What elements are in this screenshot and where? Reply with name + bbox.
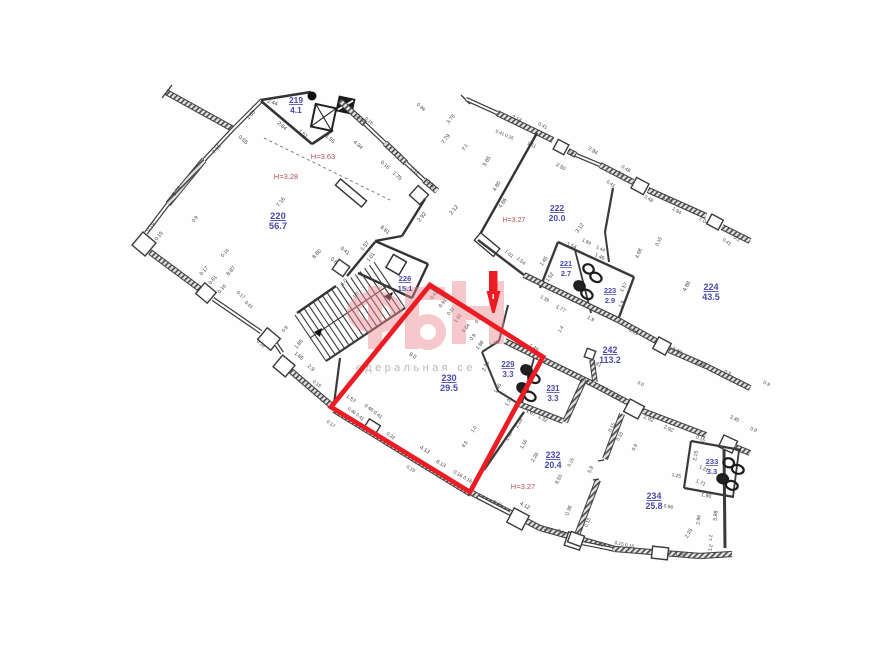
svg-text:Н=3.27: Н=3.27: [511, 482, 535, 491]
svg-text:1.2: 1.2: [707, 544, 714, 552]
svg-text:25.8: 25.8: [645, 501, 662, 511]
svg-text:2.7: 2.7: [561, 269, 571, 278]
svg-text:2.96: 2.96: [695, 514, 702, 525]
svg-text:226: 226: [399, 274, 412, 283]
svg-text:Н=3.28: Н=3.28: [274, 172, 298, 181]
svg-text:29.5: 29.5: [440, 383, 458, 393]
svg-text:43.5: 43.5: [702, 292, 720, 302]
svg-text:231: 231: [546, 384, 560, 393]
svg-text:2.9: 2.9: [605, 296, 615, 305]
svg-text:242: 242: [603, 345, 618, 355]
svg-text:224: 224: [703, 282, 718, 292]
svg-text:219: 219: [289, 95, 303, 105]
svg-text:229: 229: [501, 360, 515, 369]
svg-text:56.7: 56.7: [269, 220, 287, 231]
svg-text:Н=3.63: Н=3.63: [311, 152, 335, 161]
svg-text:223: 223: [604, 286, 616, 295]
svg-text:едеральная се: едеральная се: [356, 362, 476, 374]
svg-text:15.1: 15.1: [398, 284, 414, 293]
svg-text:1.2: 1.2: [708, 534, 714, 541]
svg-text:3.98: 3.98: [712, 510, 719, 521]
svg-text:3.3: 3.3: [503, 370, 515, 379]
svg-text:4.1: 4.1: [290, 105, 302, 115]
svg-text:234: 234: [647, 491, 662, 501]
svg-text:113.2: 113.2: [599, 355, 621, 365]
svg-text:230: 230: [441, 373, 456, 383]
svg-text:3.3: 3.3: [707, 467, 718, 476]
svg-text:232: 232: [546, 450, 561, 460]
svg-text:Н=3.27: Н=3.27: [503, 217, 526, 224]
svg-text:20.0: 20.0: [549, 213, 566, 223]
svg-text:221: 221: [560, 259, 572, 268]
svg-text:20.4: 20.4: [544, 460, 561, 470]
svg-text:222: 222: [550, 203, 565, 213]
svg-text:233: 233: [706, 457, 719, 466]
svg-text:1.26: 1.26: [675, 552, 685, 559]
svg-text:3.3: 3.3: [548, 394, 560, 403]
